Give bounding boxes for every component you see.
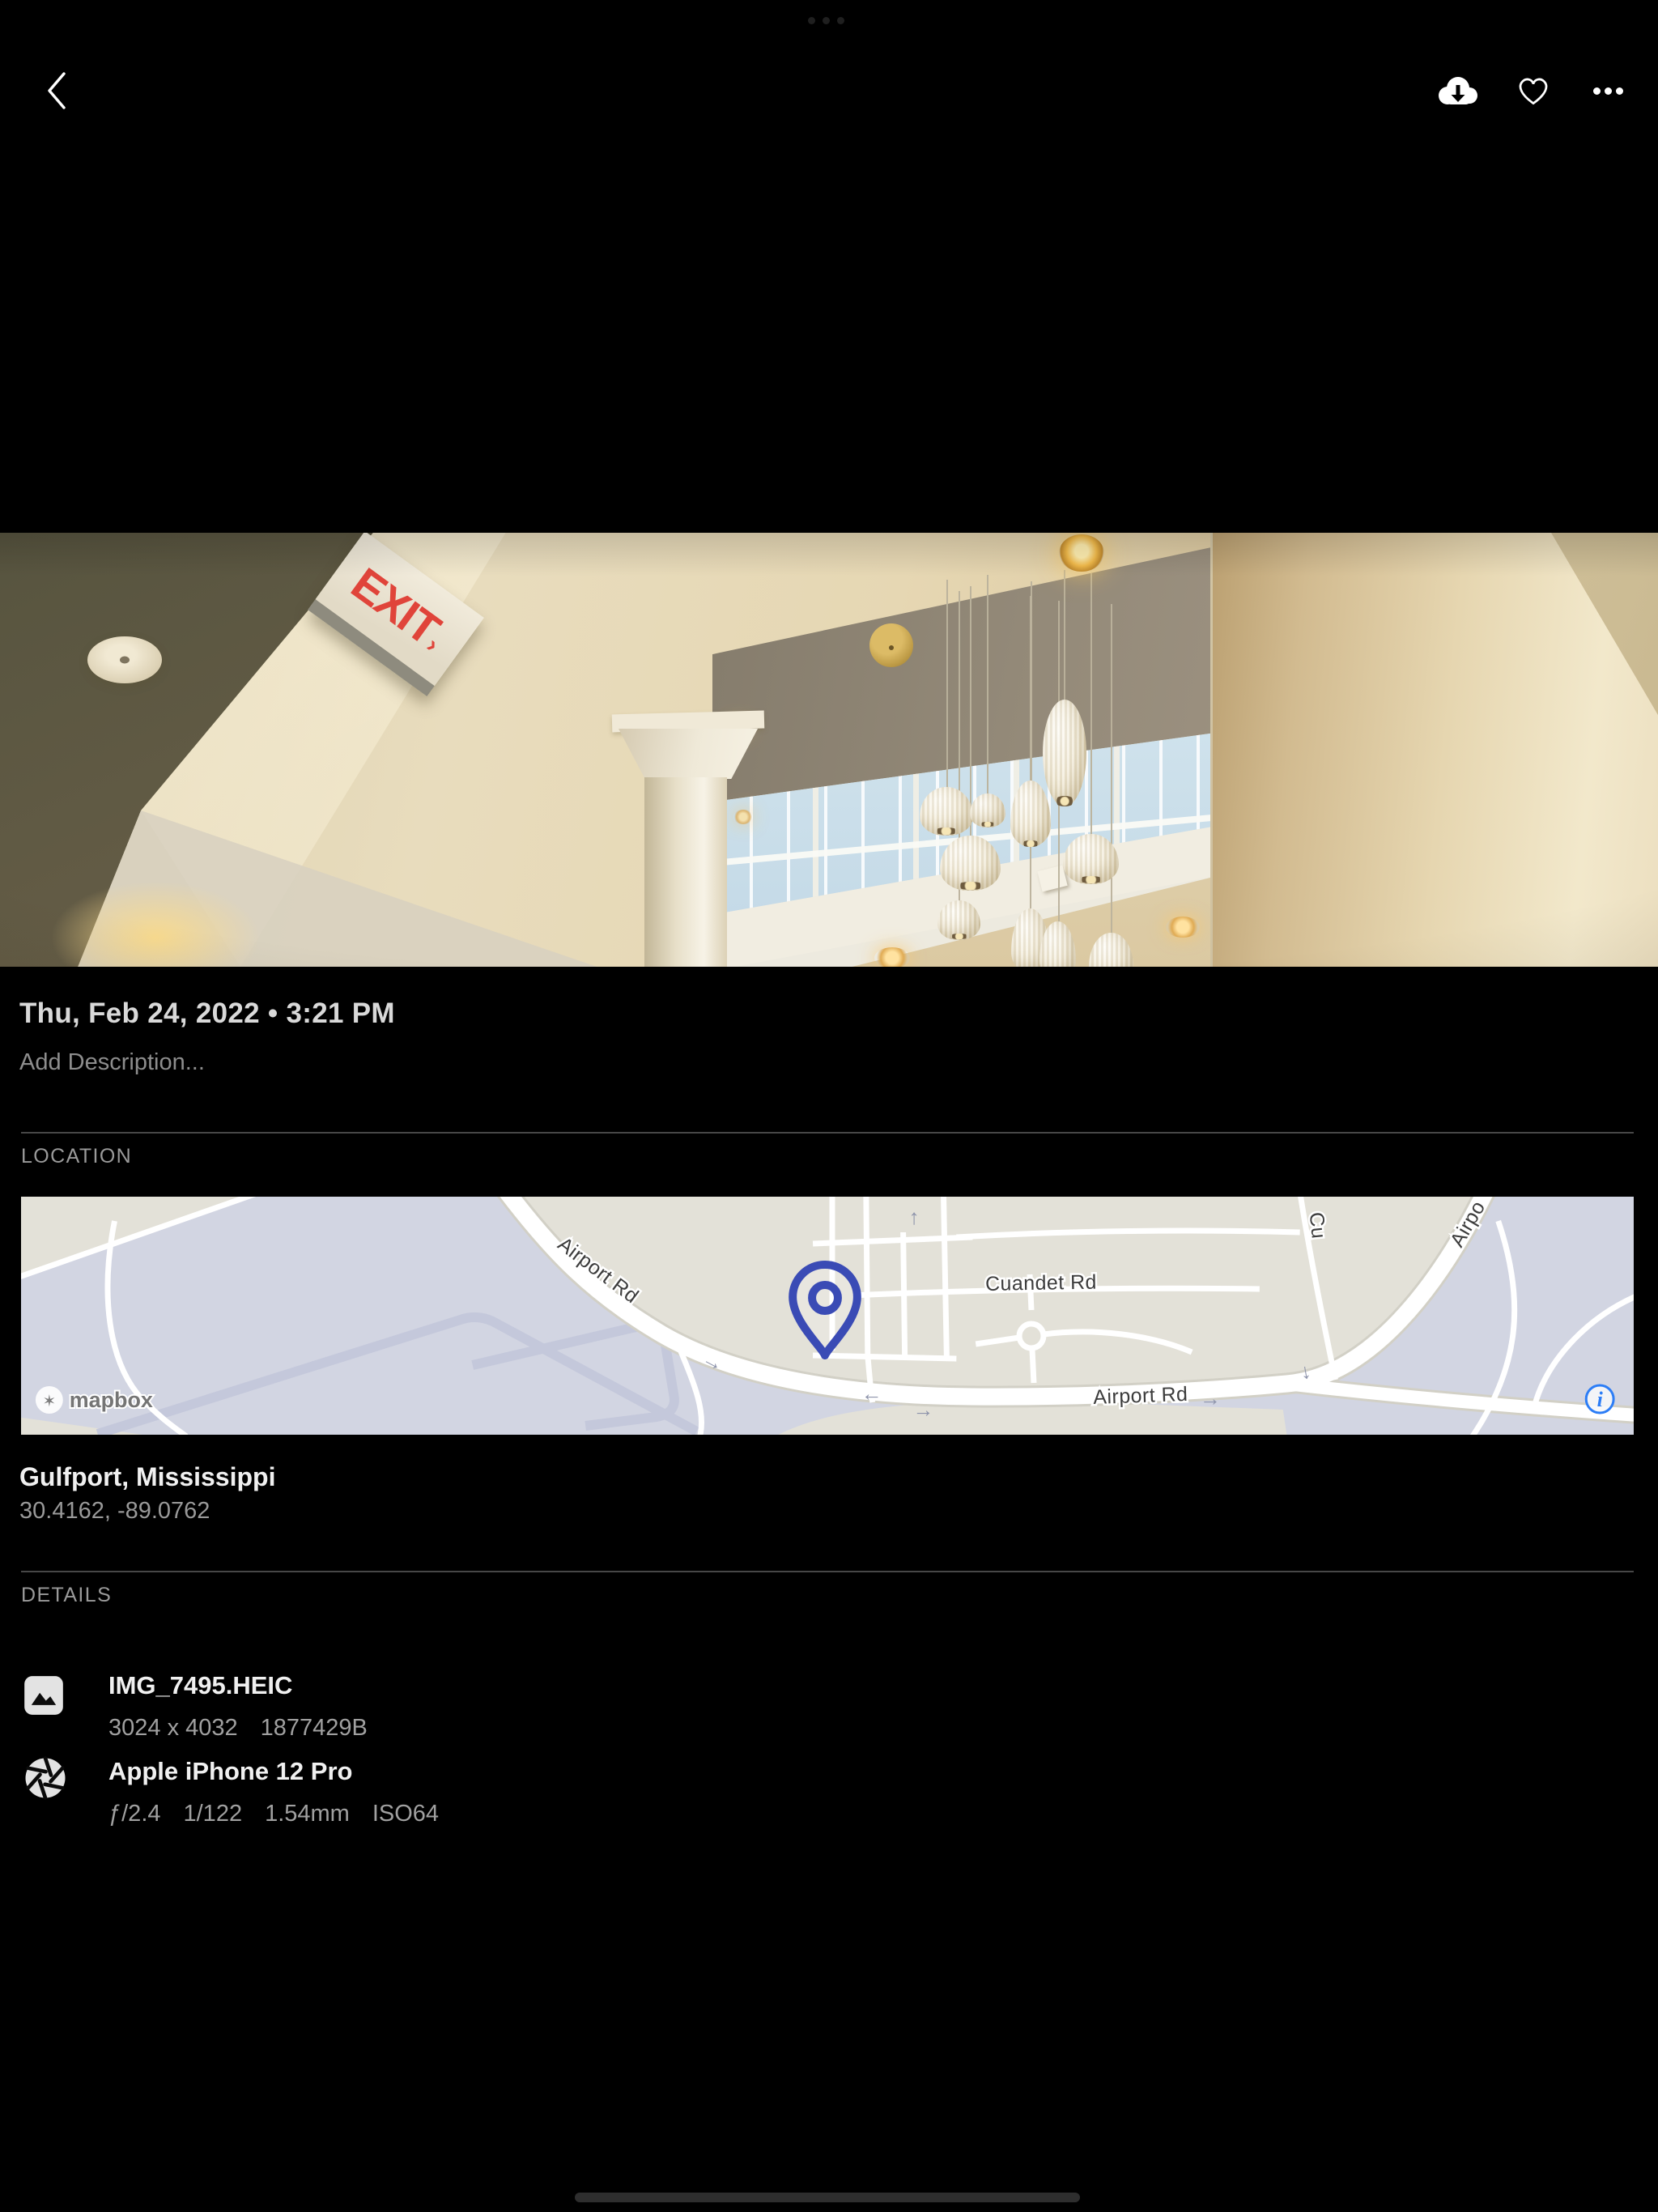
location-section-label: LOCATION bbox=[21, 1145, 132, 1168]
file-size: 1877429B bbox=[261, 1715, 368, 1742]
location-place: Gulfport, Mississippi bbox=[19, 1462, 275, 1492]
file-meta: 3024 x 4032 1877429B bbox=[108, 1715, 390, 1742]
svg-text:→: → bbox=[913, 1399, 934, 1422]
svg-text:mapbox: mapbox bbox=[70, 1388, 153, 1412]
file-dimensions: 3024 x 4032 bbox=[108, 1715, 238, 1742]
capture-datetime: Thu, Feb 24, 2022 • 3:21 PM bbox=[19, 998, 395, 1030]
heart-outline-icon bbox=[1516, 73, 1551, 108]
svg-text:→: → bbox=[900, 1208, 923, 1229]
svg-text:Airport Rd: Airport Rd bbox=[1093, 1383, 1188, 1409]
back-button[interactable] bbox=[32, 66, 81, 115]
toolbar bbox=[0, 0, 1658, 154]
favorite-button[interactable] bbox=[1509, 66, 1558, 115]
svg-text:→: → bbox=[1295, 1360, 1321, 1385]
svg-text:Cu: Cu bbox=[1305, 1211, 1330, 1240]
camera-model: Apple iPhone 12 Pro bbox=[108, 1757, 352, 1786]
photo-info-screen: EXIT › bbox=[0, 0, 1658, 2212]
section-divider bbox=[21, 1571, 1634, 1572]
svg-text:✶: ✶ bbox=[43, 1393, 57, 1410]
camera-aperture: ƒ/2.4 bbox=[108, 1801, 161, 1827]
camera-meta: ƒ/2.4 1/122 1.54mm ISO64 bbox=[108, 1801, 461, 1827]
svg-text:→: → bbox=[1200, 1388, 1221, 1410]
home-indicator[interactable] bbox=[575, 2193, 1080, 2202]
location-map[interactable]: ← → → → → → Airport Rd Cuandet Rd Airpor… bbox=[21, 1197, 1634, 1435]
camera-focal-length: 1.54mm bbox=[265, 1801, 350, 1827]
svg-text:←: ← bbox=[861, 1383, 882, 1406]
chevron-left-icon bbox=[42, 70, 71, 112]
location-coordinates: 30.4162, -89.0762 bbox=[19, 1498, 210, 1525]
photo-preview[interactable]: EXIT › bbox=[0, 533, 1658, 967]
description-field[interactable]: Add Description... bbox=[19, 1049, 205, 1076]
details-section-label: DETAILS bbox=[21, 1584, 112, 1607]
svg-text:Cuandet Rd: Cuandet Rd bbox=[985, 1271, 1097, 1295]
section-divider bbox=[21, 1132, 1634, 1134]
ellipsis-icon bbox=[1591, 87, 1625, 95]
camera-iso: ISO64 bbox=[372, 1801, 439, 1827]
file-name: IMG_7495.HEIC bbox=[108, 1671, 292, 1700]
photo-vignette bbox=[0, 533, 1658, 967]
cloud-download-icon bbox=[1435, 74, 1479, 107]
camera-shutter: 1/122 bbox=[184, 1801, 243, 1827]
mapbox-logo[interactable]: ✶ mapbox bbox=[36, 1386, 153, 1414]
map-info-button[interactable]: i bbox=[1586, 1385, 1613, 1413]
aperture-icon bbox=[23, 1755, 68, 1805]
more-options-button[interactable] bbox=[1584, 66, 1632, 115]
svg-text:i: i bbox=[1597, 1388, 1604, 1411]
image-file-icon bbox=[23, 1674, 65, 1721]
download-button[interactable] bbox=[1433, 66, 1482, 115]
